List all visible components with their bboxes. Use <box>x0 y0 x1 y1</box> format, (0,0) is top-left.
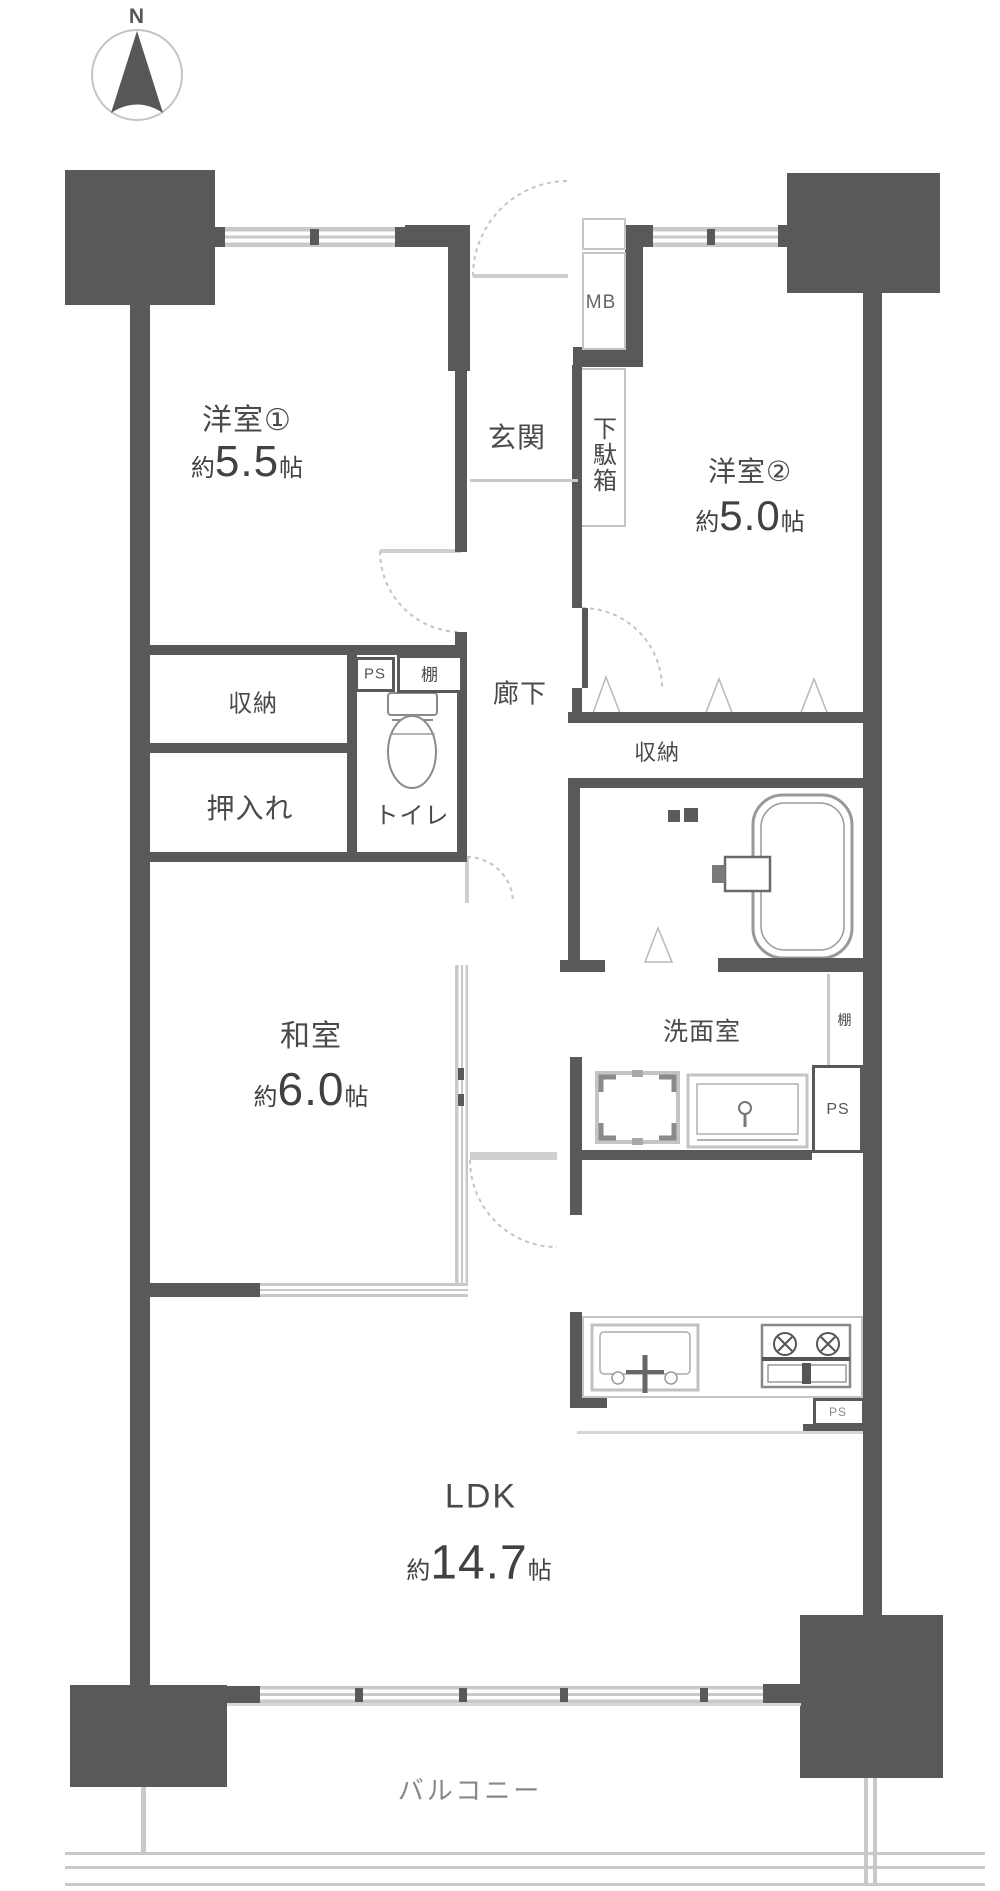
door-leaf <box>470 1152 557 1160</box>
window <box>653 227 778 247</box>
room-label-western1: 洋室① <box>202 395 292 439</box>
sliding-door-handle <box>458 1068 464 1080</box>
door-panel <box>582 608 588 688</box>
wall <box>570 1150 812 1160</box>
wall <box>130 305 150 1685</box>
label-balcony: バルコニー <box>398 1771 542 1808</box>
wall <box>227 1686 260 1703</box>
wall <box>570 1057 582 1215</box>
pillar <box>70 1685 227 1787</box>
wall <box>455 370 467 552</box>
label-ps-toilet: PS <box>364 666 386 683</box>
label-toilet: トイレ <box>375 796 450 831</box>
balcony-rail <box>65 1852 985 1855</box>
pillar <box>787 173 940 293</box>
sliding-door <box>260 1283 468 1297</box>
wall <box>448 225 470 371</box>
pillar <box>800 1615 943 1778</box>
room-size-western1: 約5.5帖 <box>191 437 303 487</box>
wall <box>707 229 715 245</box>
kitchen-floor-line <box>577 1431 863 1434</box>
label-ps-washroom: PS <box>826 1101 849 1119</box>
washer-pan-icon <box>597 1070 678 1145</box>
sliding-door-handle <box>458 1094 464 1106</box>
wall <box>568 778 863 788</box>
window-divider <box>355 1688 363 1702</box>
balcony-rail <box>65 1883 985 1886</box>
window-divider <box>459 1688 467 1702</box>
wall <box>570 1397 607 1408</box>
label-corridor: 廊下 <box>493 674 547 711</box>
balcony-divider <box>873 1778 877 1884</box>
wall <box>150 743 347 753</box>
wall <box>150 645 467 655</box>
wall <box>625 225 653 247</box>
wall <box>718 958 867 972</box>
entrance-step-line <box>470 479 578 482</box>
label-storage-west1: 収納 <box>228 684 278 719</box>
meter-box-door <box>582 218 626 250</box>
balcony-edge <box>227 1703 801 1706</box>
wall <box>215 227 225 247</box>
compass-north-label: N <box>129 5 145 29</box>
label-washroom: 洗面室 <box>663 1012 741 1048</box>
label-entrance: 玄関 <box>488 416 546 456</box>
room-label-western2: 洋室② <box>708 450 792 490</box>
room-label-ldk: LDK <box>445 1478 517 1517</box>
kitchen-counter <box>582 1316 863 1398</box>
wall <box>763 1684 801 1703</box>
wall <box>395 227 405 247</box>
floor-plan: N 洋室① 約5.5帖 洋室② 約5.0帖 和室 約6.0帖 LDK 約14.7… <box>0 0 1000 1891</box>
label-oshiire: 押入れ <box>206 787 293 827</box>
shelf-line <box>827 974 830 1065</box>
wall <box>570 1312 582 1408</box>
wall <box>150 852 467 862</box>
balcony-rail <box>65 1866 985 1869</box>
wall <box>572 365 582 608</box>
balcony-divider <box>141 1787 146 1855</box>
wall <box>568 788 580 965</box>
label-shelf-washroom: 棚 <box>838 1010 853 1030</box>
bathtub-icon <box>668 795 852 958</box>
toilet-icon <box>388 693 437 788</box>
wall <box>778 225 790 247</box>
room-label-japanese: 和室 <box>280 1011 342 1055</box>
wall <box>148 1283 260 1297</box>
window-divider <box>700 1688 708 1702</box>
wall <box>310 229 319 245</box>
sliding-door <box>455 965 468 1283</box>
vanity-sink-icon <box>688 1075 807 1147</box>
pillar <box>65 170 215 305</box>
wall <box>560 960 605 972</box>
balcony-divider <box>864 1778 868 1884</box>
window-divider <box>560 1688 568 1702</box>
label-shelf-toilet: 棚 <box>421 661 439 686</box>
wall <box>568 712 863 723</box>
label-ps-kitchen: PS <box>829 1405 847 1419</box>
room-size-western2: 約5.0帖 <box>695 492 804 540</box>
wall <box>863 293 882 1615</box>
window <box>260 1686 763 1703</box>
label-storage-west2: 収納 <box>634 735 680 767</box>
label-meter-box: MB <box>586 292 617 314</box>
wall <box>573 347 643 367</box>
label-shoe-cabinet: 下駄箱 <box>585 416 620 494</box>
room-size-japanese: 約6.0帖 <box>254 1062 369 1116</box>
room-size-ldk: 約14.7帖 <box>406 1536 551 1591</box>
compass-icon <box>92 30 182 120</box>
